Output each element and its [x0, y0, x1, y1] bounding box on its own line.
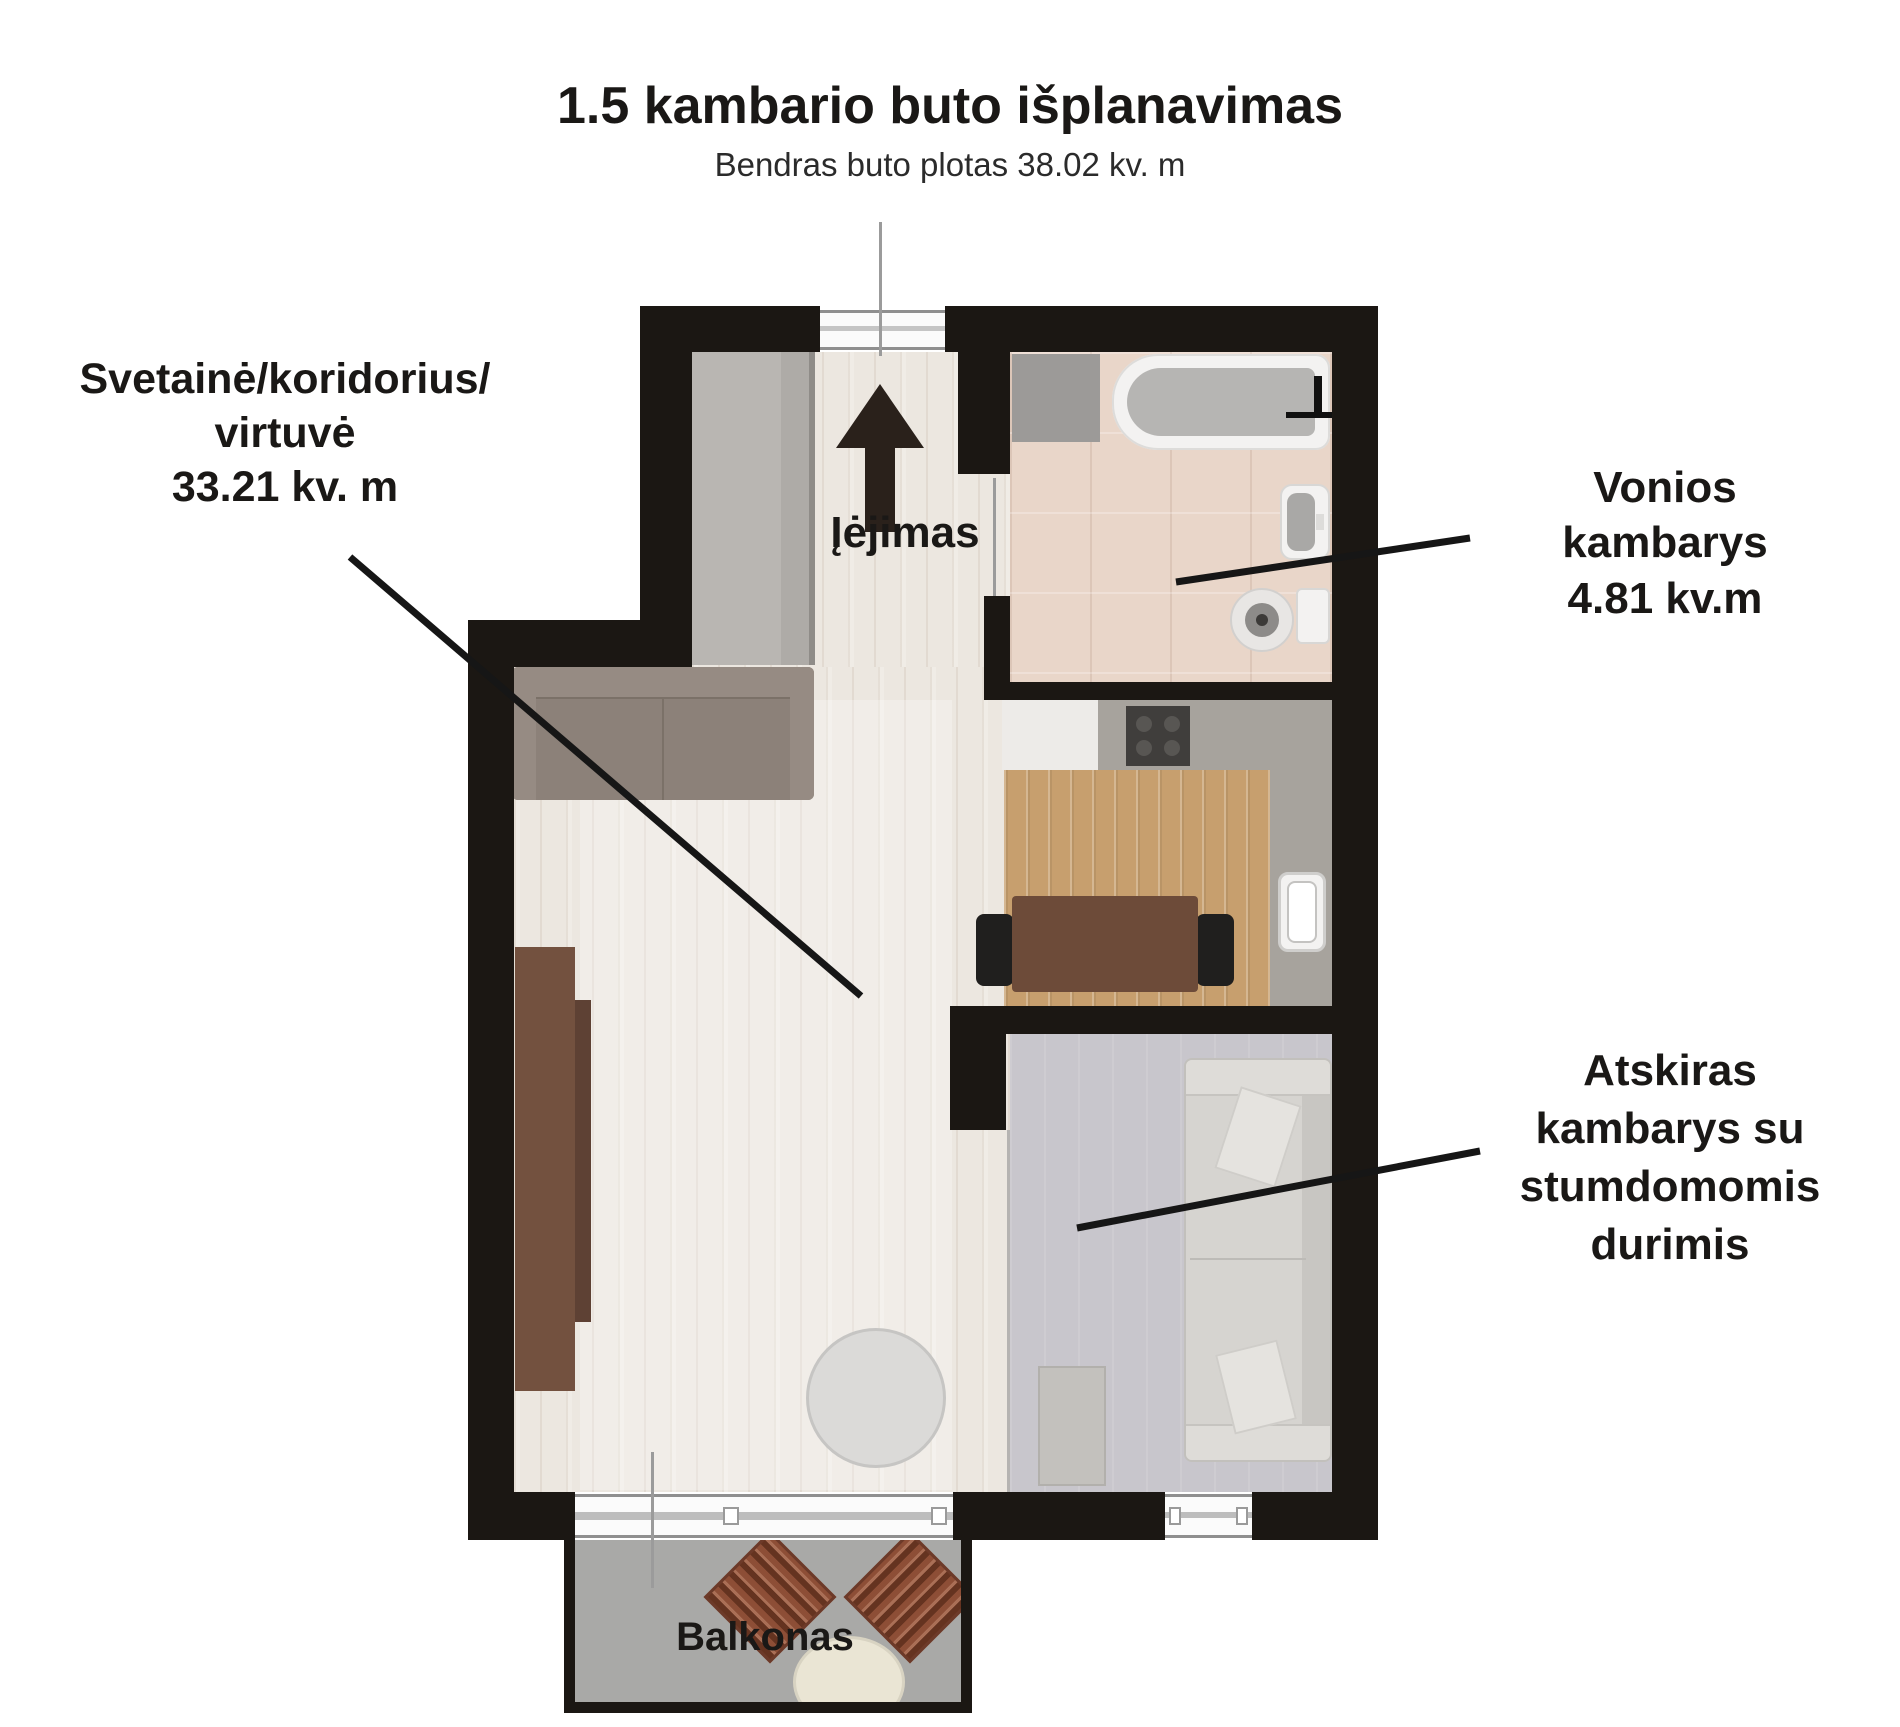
page-subtitle: Bendras buto plotas 38.02 kv. m	[0, 146, 1900, 184]
wall-bathroom-left-lower	[984, 596, 1010, 688]
wall-bottom-middle	[953, 1492, 1165, 1540]
room-sofa-armrest-bottom	[1186, 1424, 1330, 1460]
page-title: 1.5 kambario buto išplanavimas	[0, 74, 1900, 140]
room-sofa-pillow	[1215, 1339, 1297, 1434]
room-sofa-armrest-top	[1186, 1060, 1330, 1096]
bathroom-sink-basin	[1287, 493, 1315, 551]
toilet-tank	[1296, 588, 1330, 644]
living-room-label: Svetainė/koridorius/ virtuvė 33.21 kv. m	[30, 352, 540, 515]
wall-sliding-door-pocket	[950, 1006, 1006, 1130]
room-side-table	[1038, 1366, 1106, 1486]
entrance-arrow-icon	[836, 384, 924, 448]
living-sofa-backrest	[512, 667, 814, 699]
stove-icon	[1126, 706, 1190, 766]
bathroom-sink-tap	[1316, 514, 1324, 530]
wall-right	[1332, 306, 1378, 1540]
kitchen-counter-white	[1002, 700, 1098, 770]
entrance-sill-line	[820, 326, 945, 331]
balcony-door-line	[651, 1452, 654, 1588]
separate-room-window	[1165, 1494, 1252, 1538]
wall-bottom-right	[1252, 1492, 1378, 1540]
entrance-label: Įėjimas	[770, 505, 1040, 560]
page: { "header": { "title": "1.5 kambario but…	[0, 0, 1900, 1727]
toilet-drain	[1256, 614, 1268, 626]
stove-burner	[1164, 740, 1180, 756]
balcony-door-handle	[723, 1507, 739, 1525]
separate-room-window-handle	[1236, 1507, 1248, 1525]
dining-chair	[1196, 914, 1234, 986]
living-sofa-armrest-right	[790, 667, 814, 800]
separate-room-label: Atskiras kambarys su stumdomomis durimis	[1420, 1042, 1900, 1274]
bathroom-label-line: 4.81 kv.m	[1440, 571, 1890, 626]
separate-room-label-line: stumdomomis	[1420, 1158, 1900, 1216]
bathroom-label-line: kambarys	[1440, 515, 1890, 570]
bath-faucet-icon	[1314, 376, 1322, 418]
living-room-label-line: Svetainė/koridorius/	[30, 352, 540, 406]
living-room-label-line: 33.21 kv. m	[30, 460, 540, 514]
balcony-door-handle	[931, 1507, 947, 1525]
washing-machine	[1012, 354, 1100, 442]
stove-burner	[1164, 716, 1180, 732]
room-sofa-seam	[1190, 1258, 1306, 1260]
bathtub	[1112, 354, 1330, 450]
balcony-label: Balkonas	[595, 1612, 935, 1662]
kitchen-sink	[1278, 872, 1326, 952]
living-room-label-line: virtuvė	[30, 406, 540, 460]
separate-room-label-line: durimis	[1420, 1216, 1900, 1274]
separate-room-window-handle	[1169, 1507, 1181, 1525]
bathtub-basin	[1127, 368, 1315, 436]
entrance-door-sill	[820, 310, 945, 350]
room-sofa	[1184, 1058, 1332, 1462]
entrance-door-line	[879, 222, 882, 356]
stove-burner	[1136, 716, 1152, 732]
wall-top-right	[945, 306, 1378, 352]
balcony: Balkonas	[564, 1540, 972, 1713]
wall-left-upper	[640, 306, 692, 667]
dining-table	[1012, 896, 1198, 992]
wall-kitchen-room-divider	[950, 1006, 1332, 1034]
wardrobe	[515, 947, 575, 1391]
balcony-door-rail	[575, 1512, 953, 1520]
dining-chair	[976, 914, 1014, 986]
living-sofa	[512, 667, 814, 800]
bathroom-label-line: Vonios	[1440, 460, 1890, 515]
toilet	[1230, 588, 1294, 652]
stove-burner	[1136, 740, 1152, 756]
coffee-table	[806, 1328, 946, 1468]
wall-bathroom-bottom	[984, 682, 1332, 700]
separate-room-label-line: kambarys su	[1420, 1100, 1900, 1158]
sliding-door-track	[1007, 1130, 1010, 1492]
separate-room-label-line: Atskiras	[1420, 1042, 1900, 1100]
bathroom-sink	[1280, 484, 1330, 560]
room-sofa-backrest	[1302, 1060, 1330, 1460]
room-sofa-pillow	[1214, 1086, 1301, 1188]
floor-plan: Balkonas Svetainė/koridorius/ virtuvė 33…	[0, 0, 1900, 1727]
wardrobe-door	[575, 1000, 591, 1322]
wall-bathroom-left-upper	[958, 352, 1010, 474]
balcony-sliding-door	[575, 1494, 953, 1538]
living-sofa-seam	[662, 697, 664, 800]
living-sofa-armrest-left	[512, 667, 536, 800]
wall-bottom-left	[468, 1492, 575, 1540]
bath-faucet-icon	[1286, 412, 1332, 418]
wall-left-lower	[468, 620, 514, 1540]
kitchen-sink-basin	[1287, 881, 1317, 943]
bathroom-label: Vonios kambarys 4.81 kv.m	[1440, 460, 1890, 626]
